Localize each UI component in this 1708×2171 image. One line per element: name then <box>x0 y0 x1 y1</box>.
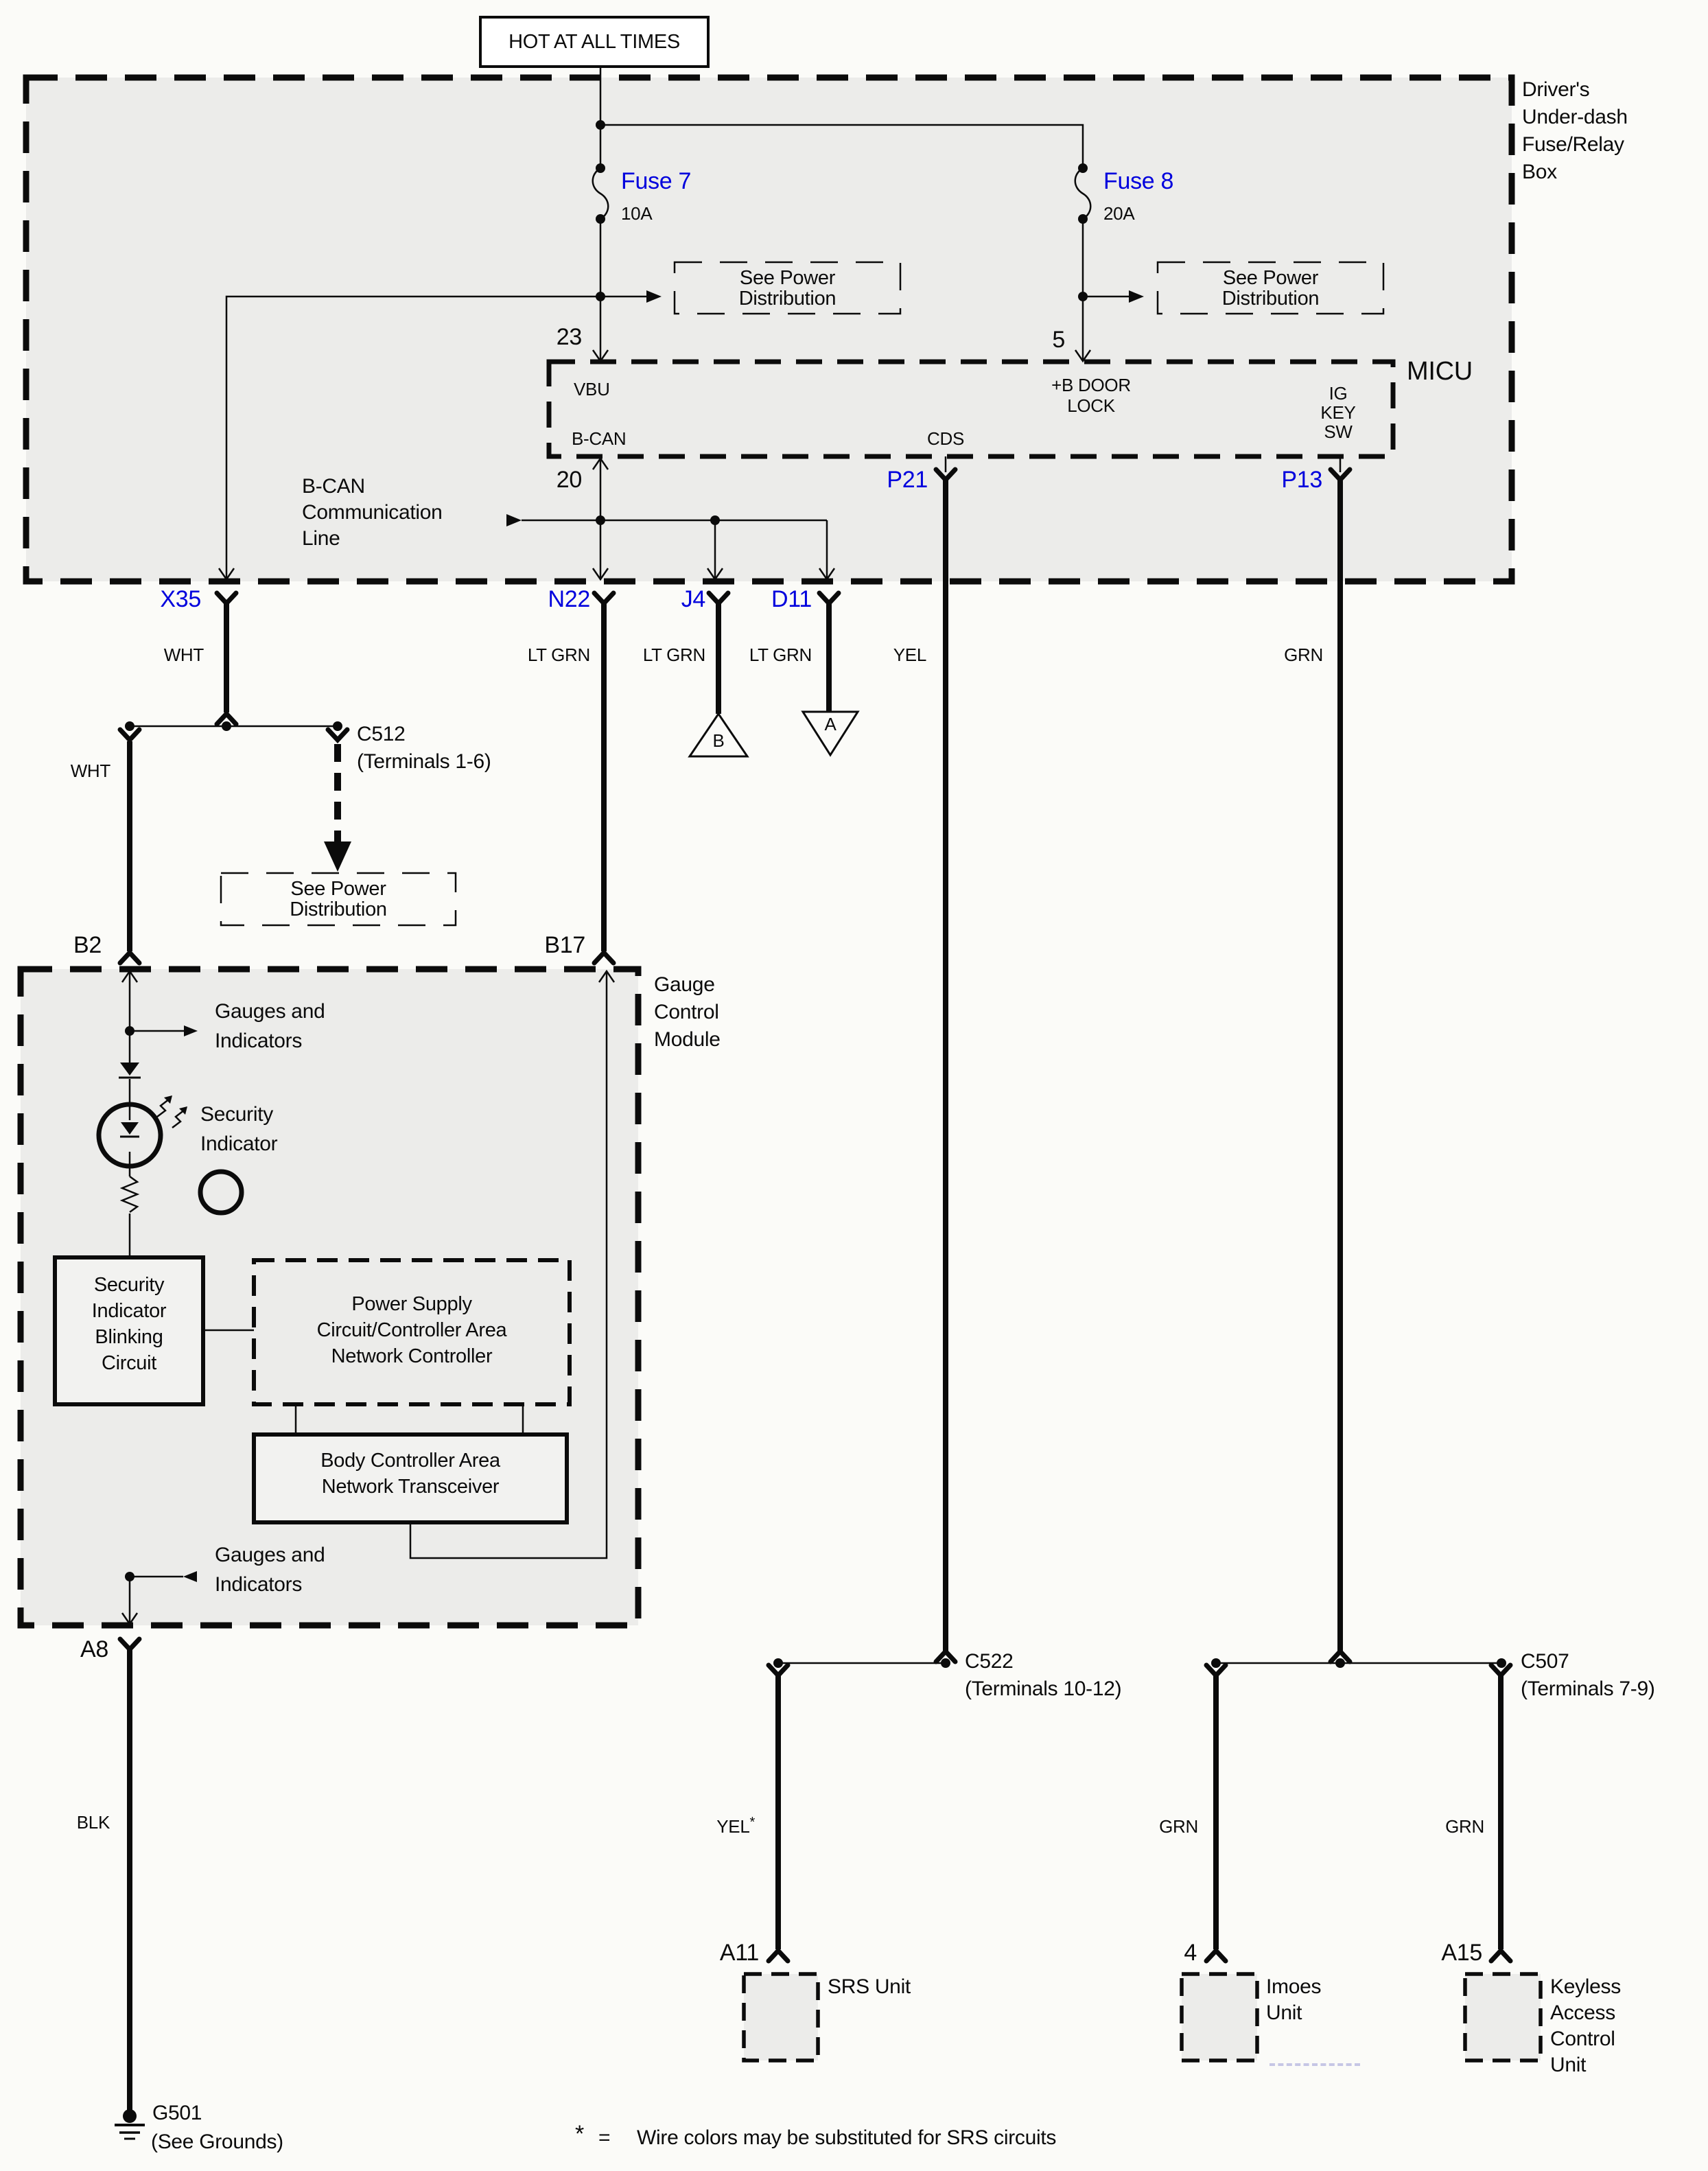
junction-dot <box>1497 1658 1506 1668</box>
junction-dot <box>333 721 342 731</box>
power-supply-box-line2: Circuit/Controller Area <box>255 1321 568 1340</box>
connector-d11: D11 <box>716 588 812 611</box>
connector-chevron-b17-end <box>594 953 613 963</box>
connector-chevron-a8 <box>120 1639 139 1649</box>
junction-dot <box>1078 292 1088 301</box>
gauges-indicators-bottom-line2: Indicators <box>215 1575 302 1595</box>
transceiver-box-line2: Network Transceiver <box>255 1477 565 1497</box>
fuse-relay-box-outline <box>26 78 1512 581</box>
power-supply-box-line1: Power Supply <box>255 1295 568 1314</box>
wire-color-grn-imoes: GRN <box>1130 1818 1198 1835</box>
junction-dot <box>125 721 134 731</box>
module-label-line2: Control <box>654 1002 719 1023</box>
connector-c512-terminals: (Terminals 1-6) <box>357 752 491 772</box>
junction-dot <box>222 721 231 731</box>
connector-pin4: 4 <box>1108 1941 1197 1964</box>
micu-pin-bdoor-line2: LOCK <box>1035 397 1147 415</box>
connector-chevron-n22 <box>594 593 613 603</box>
security-indicator-label-line1: Security <box>200 1104 273 1125</box>
fuse7-label: Fuse 7 <box>621 170 691 193</box>
power-dist-c512-line1: See Power <box>221 879 456 899</box>
pin-20: 20 <box>493 468 582 491</box>
connector-chevron-b2-top <box>120 730 139 740</box>
gauges-indicators-bottom-line1: Gauges and <box>215 1545 325 1566</box>
wire-color-yel-srs: YEL* <box>686 1818 755 1835</box>
connector-b2: B2 <box>12 933 102 957</box>
keyless-unit-label-line2: Access <box>1550 2003 1615 2023</box>
ground-symbol-g501 <box>115 2109 145 2139</box>
connector-c522-terminals: (Terminals 10-12) <box>965 1679 1121 1699</box>
module-label-line1: Gauge <box>654 975 715 995</box>
wire-color-blk: BLK <box>41 1813 110 1831</box>
junction-dot <box>1078 163 1088 173</box>
junction-dot <box>1078 214 1088 224</box>
junction-dot <box>941 1658 950 1668</box>
keyless-unit-label-line4: Unit <box>1550 2055 1586 2076</box>
c512-power-dist-arrow <box>324 744 351 872</box>
junction-dot <box>596 120 605 130</box>
junction-dot <box>125 1572 134 1581</box>
wire-color-wht-b2: WHT <box>42 762 110 780</box>
power-dist-left-line2: Distribution <box>675 289 900 309</box>
diagram-linework <box>0 0 1708 2171</box>
yel-text: YEL <box>716 1816 749 1837</box>
triangle-label-b: B <box>699 732 738 750</box>
pin-23: 23 <box>493 325 582 349</box>
security-indicator-label-line2: Indicator <box>200 1134 277 1154</box>
blinking-box-line1: Security <box>55 1275 203 1295</box>
blinking-box-line4: Circuit <box>55 1354 203 1373</box>
pin-p21: P21 <box>839 468 928 491</box>
wire-color-grn-ig: GRN <box>1254 646 1323 664</box>
connector-chevron-imoes-end <box>1206 1951 1226 1961</box>
wire-color-ltgrn-j4: LT GRN <box>603 646 705 664</box>
micu-pin-igkey-line3: SW <box>1302 423 1374 441</box>
bcan-line-label2: Communication <box>302 502 443 523</box>
connector-n22: N22 <box>501 588 590 611</box>
wire-color-grn-a15: GRN <box>1416 1818 1484 1835</box>
connector-chevron-x35 <box>217 593 236 603</box>
blinking-box-line2: Indicator <box>55 1301 203 1321</box>
imoes-unit-label-line2: Unit <box>1266 2003 1302 2023</box>
power-dist-right-line2: Distribution <box>1158 289 1383 309</box>
micu-pin-bdoor-line1: +B DOOR <box>1035 376 1147 394</box>
fuse-box-label-line4: Box <box>1522 162 1557 183</box>
wire-color-ltgrn-d11: LT GRN <box>709 646 812 664</box>
srs-unit-label: SRS Unit <box>828 1977 911 1997</box>
fuse8-label: Fuse 8 <box>1103 170 1173 193</box>
junction-dot <box>596 292 605 301</box>
transceiver-box-line1: Body Controller Area <box>255 1451 565 1471</box>
junction-dot <box>710 515 720 525</box>
gauges-indicators-top-line2: Indicators <box>215 1031 302 1052</box>
ground-see-grounds: (See Grounds) <box>151 2132 283 2152</box>
keyless-unit-label-line1: Keyless <box>1550 1977 1621 1997</box>
watermark-artifact <box>1270 2063 1360 2066</box>
junction-dot <box>1211 1658 1221 1668</box>
fuse-box-label-line2: Under-dash <box>1522 107 1628 128</box>
connector-chevron-a15-end <box>1491 1951 1510 1961</box>
connector-a15: A15 <box>1393 1941 1482 1964</box>
module-label-line3: Module <box>654 1030 721 1050</box>
junction-dot <box>596 163 605 173</box>
substitution-asterisk: * <box>750 1815 755 1830</box>
hot-at-all-times-label: HOT AT ALL TIMES <box>480 32 708 52</box>
connector-c512: C512 <box>357 724 406 745</box>
fuse7-amps: 10A <box>621 205 652 222</box>
micu-pin-igkey-line2: KEY <box>1302 404 1374 421</box>
wire-color-yel-cds: YEL <box>858 646 926 664</box>
bcan-line-label3: Line <box>302 529 340 549</box>
fuse8-amps: 20A <box>1103 205 1134 222</box>
power-dist-right-line1: See Power <box>1158 268 1383 288</box>
micu-pin-vbu: VBU <box>574 380 610 398</box>
connector-chevron-c512 <box>328 730 347 740</box>
blinking-box-line3: Blinking <box>55 1327 203 1347</box>
micu-pin-igkey-line1: IG <box>1302 384 1374 402</box>
footnote-equals: = <box>598 2128 610 2148</box>
connector-chevron-a11-end <box>769 1951 788 1961</box>
connector-x35: X35 <box>112 588 201 611</box>
connector-chevron-b2-end <box>120 953 139 963</box>
connector-c507-terminals: (Terminals 7-9) <box>1521 1679 1655 1699</box>
junction-dot <box>773 1658 783 1668</box>
footnote-text: Wire colors may be substituted for SRS c… <box>637 2128 1056 2148</box>
triangle-label-a: A <box>811 715 850 733</box>
power-dist-left-line1: See Power <box>675 268 900 288</box>
imoes-unit-label-line1: Imoes <box>1266 1977 1321 1997</box>
power-dist-c512-line2: Distribution <box>221 900 456 920</box>
junction-dot <box>1335 1658 1345 1668</box>
wire-color-ltgrn-n22: LT GRN <box>487 646 590 664</box>
gauges-indicators-top-line1: Gauges and <box>215 1001 325 1022</box>
wire-color-wht-x35: WHT <box>135 646 204 664</box>
wiring-diagram: HOT AT ALL TIMES Driver's Under-dash Fus… <box>0 0 1708 2171</box>
connector-c522: C522 <box>965 1651 1014 1672</box>
connector-chevron-d11 <box>819 593 839 603</box>
connector-b17: B17 <box>496 933 585 957</box>
fuse-box-label-line3: Fuse/Relay <box>1522 135 1624 155</box>
pin-p13: P13 <box>1233 468 1322 491</box>
junction-dot <box>125 1026 134 1036</box>
connector-a8: A8 <box>19 1638 108 1661</box>
imoes-unit-box <box>1182 1974 1257 2060</box>
keyless-unit-box <box>1465 1974 1541 2060</box>
connector-c507: C507 <box>1521 1651 1569 1672</box>
micu-label: MICU <box>1407 358 1473 384</box>
connector-a11: A11 <box>670 1941 759 1964</box>
micu-pin-bcan: B-CAN <box>572 430 626 448</box>
bcan-line-label1: B-CAN <box>302 476 365 497</box>
micu-pin-cds: CDS <box>911 430 980 448</box>
ground-g501-label: G501 <box>152 2103 202 2124</box>
pin-5: 5 <box>976 328 1065 351</box>
junction-dot <box>596 515 605 525</box>
footnote-star: * <box>575 2122 584 2146</box>
keyless-unit-label-line3: Control <box>1550 2029 1615 2050</box>
connector-j4: J4 <box>616 588 705 611</box>
junction-dot <box>596 214 605 224</box>
fuse-box-label-line1: Driver's <box>1522 80 1589 100</box>
power-supply-box-line3: Network Controller <box>255 1347 568 1367</box>
srs-unit-box <box>744 1974 818 2060</box>
